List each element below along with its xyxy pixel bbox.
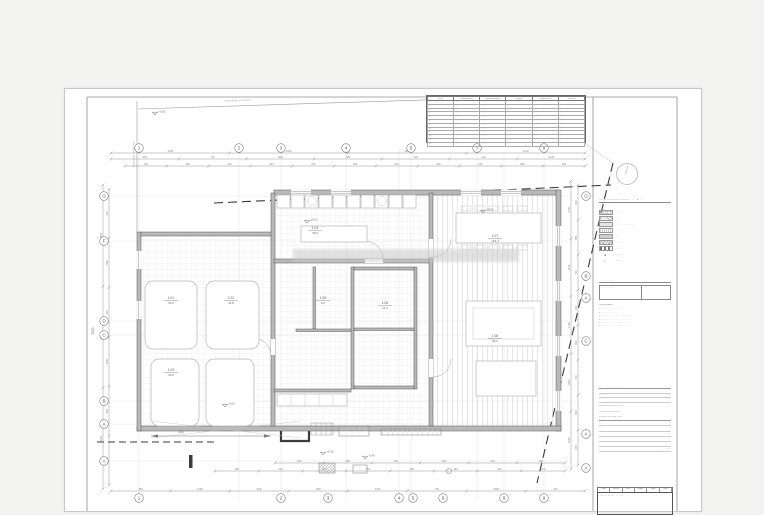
table-cell: ··: [558, 142, 584, 146]
elevation-value: ±0,00: [486, 207, 493, 211]
room-number: 1.08: [492, 334, 498, 338]
room-area: 56,0: [492, 339, 498, 343]
legend-symbol-label: ··· — ·····: [613, 259, 623, 262]
grid-bubble-label: 4: [345, 146, 348, 151]
dim-value: 830: [346, 155, 351, 159]
legend-item-label: ·····: [615, 235, 619, 238]
hatch-swatch-icon: [599, 222, 613, 228]
elevation-value: ±0,00: [310, 217, 317, 221]
stamp-column-label: №док.: [635, 488, 647, 492]
stamp-title-box: ··········· · ····: [597, 492, 673, 515]
notes-section: ··· ········ ····· ···· ········· ····· …: [599, 279, 671, 329]
room-number: 1.02: [228, 296, 234, 300]
dim-value: 510: [227, 162, 232, 166]
dim-value: 1540: [567, 206, 571, 212]
dim-value: 420: [297, 459, 302, 463]
dim-value: 1460: [567, 379, 571, 385]
room-area: 164,4: [491, 239, 499, 243]
dim-value: 720: [574, 375, 578, 380]
legend-item-label: ···· ···· ····· · ·········: [615, 223, 636, 226]
table-row: 12························: [428, 142, 585, 146]
grid-bubble-label: 3: [280, 146, 283, 151]
titleblock-mini-row: ····· ·······: [599, 447, 671, 452]
grid-bubble-label: B: [102, 399, 105, 404]
elevation-flag-icon: [320, 452, 325, 455]
dim-value: 1240: [375, 487, 381, 491]
dim-value: 860: [105, 408, 109, 413]
titleblock-row: ····· ·······: [599, 398, 671, 403]
dim-value: 3300: [286, 149, 292, 153]
dim-value: 280: [410, 467, 415, 471]
stamp-column-label: Лист: [623, 488, 635, 492]
dim-value: 510: [278, 467, 283, 471]
dim-value: 300: [562, 162, 567, 166]
titleblock-address-line: ············ ········ ·····: [599, 404, 671, 408]
elevation-value: +0,05: [158, 109, 166, 113]
grid-bubble-label: 8: [503, 496, 506, 501]
room-area: 34,8: [228, 301, 234, 305]
grid-bubble-label: 3: [327, 496, 330, 501]
right-column: —————— ———, ···· + ···· ··· ·· ········ …: [595, 97, 675, 511]
room-area: 6,2: [321, 301, 326, 305]
dim-value: 380: [539, 459, 544, 463]
dim-value: 690: [574, 340, 578, 345]
dim-value: 1080: [493, 487, 499, 491]
room-number: 1.01: [168, 296, 174, 300]
elevation-value: -0,45: [368, 453, 375, 457]
stamp-block: Изм.Кол.учЛист№док.Подп.Дата ···········…: [597, 487, 673, 515]
room-area: 12,4: [382, 306, 388, 310]
room-number: 1.06: [382, 301, 388, 305]
hatch-swatch-icon: [599, 246, 613, 252]
dim-value: 340: [478, 162, 483, 166]
dim-value: 4120: [523, 149, 529, 153]
notes-heading: Примечания:: [599, 304, 671, 307]
grid-bubble-label: G: [102, 194, 106, 199]
grid-bubble-label: G: [584, 194, 588, 199]
grid-bubble-label: 2: [238, 146, 241, 151]
stamp-column-label: Кол.уч: [610, 488, 622, 492]
dim-value: 510: [395, 162, 400, 166]
elevation-flag-icon: [362, 456, 367, 459]
grid-bubble-label: 6: [442, 496, 445, 501]
elevation-value: +0,15: [326, 449, 334, 453]
titleblock-address-line: ··· ··········· ···· ····: [599, 410, 671, 414]
dim-value: 1920: [567, 437, 571, 443]
stamp-column-label: Подп.: [647, 488, 659, 492]
dim-value: 1780: [567, 322, 571, 328]
stamp-column-label: Изм.: [598, 488, 610, 492]
room-number: 1.05: [320, 296, 326, 300]
dim-value: 980: [138, 487, 143, 491]
legend-symbol-icon: ◄: [599, 253, 611, 257]
table-cell: ·····: [454, 142, 480, 146]
dim-value: 1040: [105, 358, 109, 364]
cabinet-row: [277, 394, 347, 406]
title-block: ····· ········· ···· ····· · ···· ······…: [599, 386, 671, 452]
boundary-label-top: граница участка: [225, 98, 251, 103]
legend-item-label: ·········: [615, 211, 622, 214]
dim-value: 760: [435, 487, 440, 491]
floor-legend: —————— ———, ···· + ···· ··· ·· ········ …: [599, 197, 671, 264]
grid-bubble-label: 2: [280, 496, 283, 501]
room-number: 1.03: [168, 368, 174, 372]
dim-value: 1020: [256, 487, 262, 491]
grid-bubble-label: 1: [138, 496, 141, 501]
sample-left: ···· ·········: [600, 286, 641, 299]
elevation-flag-icon: [152, 112, 157, 115]
dim-value: 920: [105, 310, 109, 315]
dim-value: 300: [442, 459, 447, 463]
legend-item-label: ··········: [615, 229, 623, 232]
legend-symbol-item: ⌖··· — ·····: [599, 258, 671, 264]
room-area: 33,6: [168, 373, 174, 377]
table-cell: 12: [428, 142, 454, 146]
dim-value: 260: [436, 162, 441, 166]
room-area: 38,6: [312, 231, 318, 235]
hatch-swatch-icon: [599, 210, 613, 216]
elevation-value: -0,02: [228, 401, 235, 405]
grid-bubble-label: 5: [410, 146, 413, 151]
hatch-swatch-icon: [599, 216, 613, 222]
table-cell: ·········: [480, 142, 506, 146]
titleblock-address-line: · ······· ···· ····· ·····: [599, 415, 671, 419]
sample-right: ·····: [641, 286, 670, 299]
blur-band: [293, 249, 519, 262]
hatch-swatch-icon: [599, 240, 613, 246]
north-indicator-icon: [616, 163, 638, 185]
dim-value: 3940: [99, 435, 103, 441]
dim-value: 740: [574, 270, 578, 275]
grid-bubble-label: 5: [412, 496, 415, 501]
dim-value: 340: [186, 162, 191, 166]
screenshot-root: { "page":{"bg":"#f3f3f2","sheet_bg":"#ff…: [0, 0, 764, 510]
dim-value: 650: [574, 445, 578, 450]
dim-value: 350: [143, 155, 148, 159]
dim-value: 880: [316, 487, 321, 491]
dim-value: 940: [553, 487, 558, 491]
dim-value: 410: [481, 155, 486, 159]
drawing-sheet: граница участка граница участка: [64, 88, 702, 512]
dim-value: 645: [414, 155, 419, 159]
table-cell: ···: [506, 142, 532, 146]
dim-value: 1245: [167, 149, 173, 153]
dim-value: 360: [366, 467, 371, 471]
dim-value: 330: [497, 467, 502, 471]
dim-value: 280: [269, 162, 274, 166]
dim-value: 620: [574, 200, 578, 205]
table-cell: ·····: [532, 142, 558, 146]
legend-item-label: ···· ·····: [615, 241, 623, 244]
legend-symbol-label: ··· — ·······: [613, 253, 625, 256]
dim-value: 810: [574, 305, 578, 310]
dim-value: 440: [453, 467, 458, 471]
legend-symbol-icon: ⌖: [599, 259, 611, 263]
dim-value: 1650: [277, 155, 283, 159]
dim-value: 330: [353, 162, 358, 166]
room-number: 1.07: [492, 234, 498, 238]
dim-value: 1245: [548, 155, 554, 159]
dim-value: 1180: [105, 260, 109, 266]
dim-value: 300: [235, 467, 240, 471]
grid-bubble-label: 9: [543, 496, 546, 501]
dim-value: 880: [574, 235, 578, 240]
legend-title: —————— ———, ···· + ····: [599, 197, 671, 203]
dim-value: 2120: [567, 264, 571, 270]
dim-value: 420: [322, 467, 327, 471]
sample-box: ···· ········· ·····: [599, 285, 671, 300]
stamp-column-label: Дата: [660, 488, 672, 492]
room-area: 35,2: [168, 301, 174, 305]
sample-caption: ··· ········ ·····: [599, 279, 671, 283]
dim-value-major: 1500: [91, 327, 95, 334]
dim-value: 1460: [197, 487, 203, 491]
legend-subtitle: ··· ·· ········ ·····: [599, 205, 671, 208]
dim-value: 260: [394, 459, 399, 463]
room-number: 1.04: [312, 226, 318, 230]
grid-bubble-label: 4: [398, 496, 401, 501]
notes-list: Примечания: 1. ······ ········ · ··· ···…: [599, 304, 671, 329]
dim-value: 270: [541, 467, 546, 471]
dim-value: 420: [311, 162, 316, 166]
dim-value: 120: [144, 162, 149, 166]
grid-bubble-label: 1: [138, 146, 141, 151]
hatch-swatch-icon: [599, 234, 613, 240]
legend-item-label: ······ ····: [615, 247, 624, 250]
stamp-title: ··········· · ····: [600, 494, 671, 498]
boundary-label-left: граница участка: [132, 141, 136, 167]
dim-value: 760: [105, 211, 109, 216]
dim-value: 240: [490, 459, 495, 463]
dim-value: 740: [210, 155, 215, 159]
schedule-table: ————————————————————————1···············…: [426, 95, 586, 143]
grid-bubble-label: B: [584, 274, 587, 279]
note-line: 6. ······ ······ ·· ····· — ··· ····: [599, 325, 671, 328]
grid-bubble-label: F: [103, 239, 106, 244]
dim-value: 180: [345, 459, 350, 463]
dim-value-major: 300: [178, 430, 184, 434]
dim-value: 830: [574, 410, 578, 415]
dim-value: 450: [520, 162, 525, 166]
legend-item-label: ······: [615, 217, 620, 220]
hatch-swatch-icon: [599, 228, 613, 234]
